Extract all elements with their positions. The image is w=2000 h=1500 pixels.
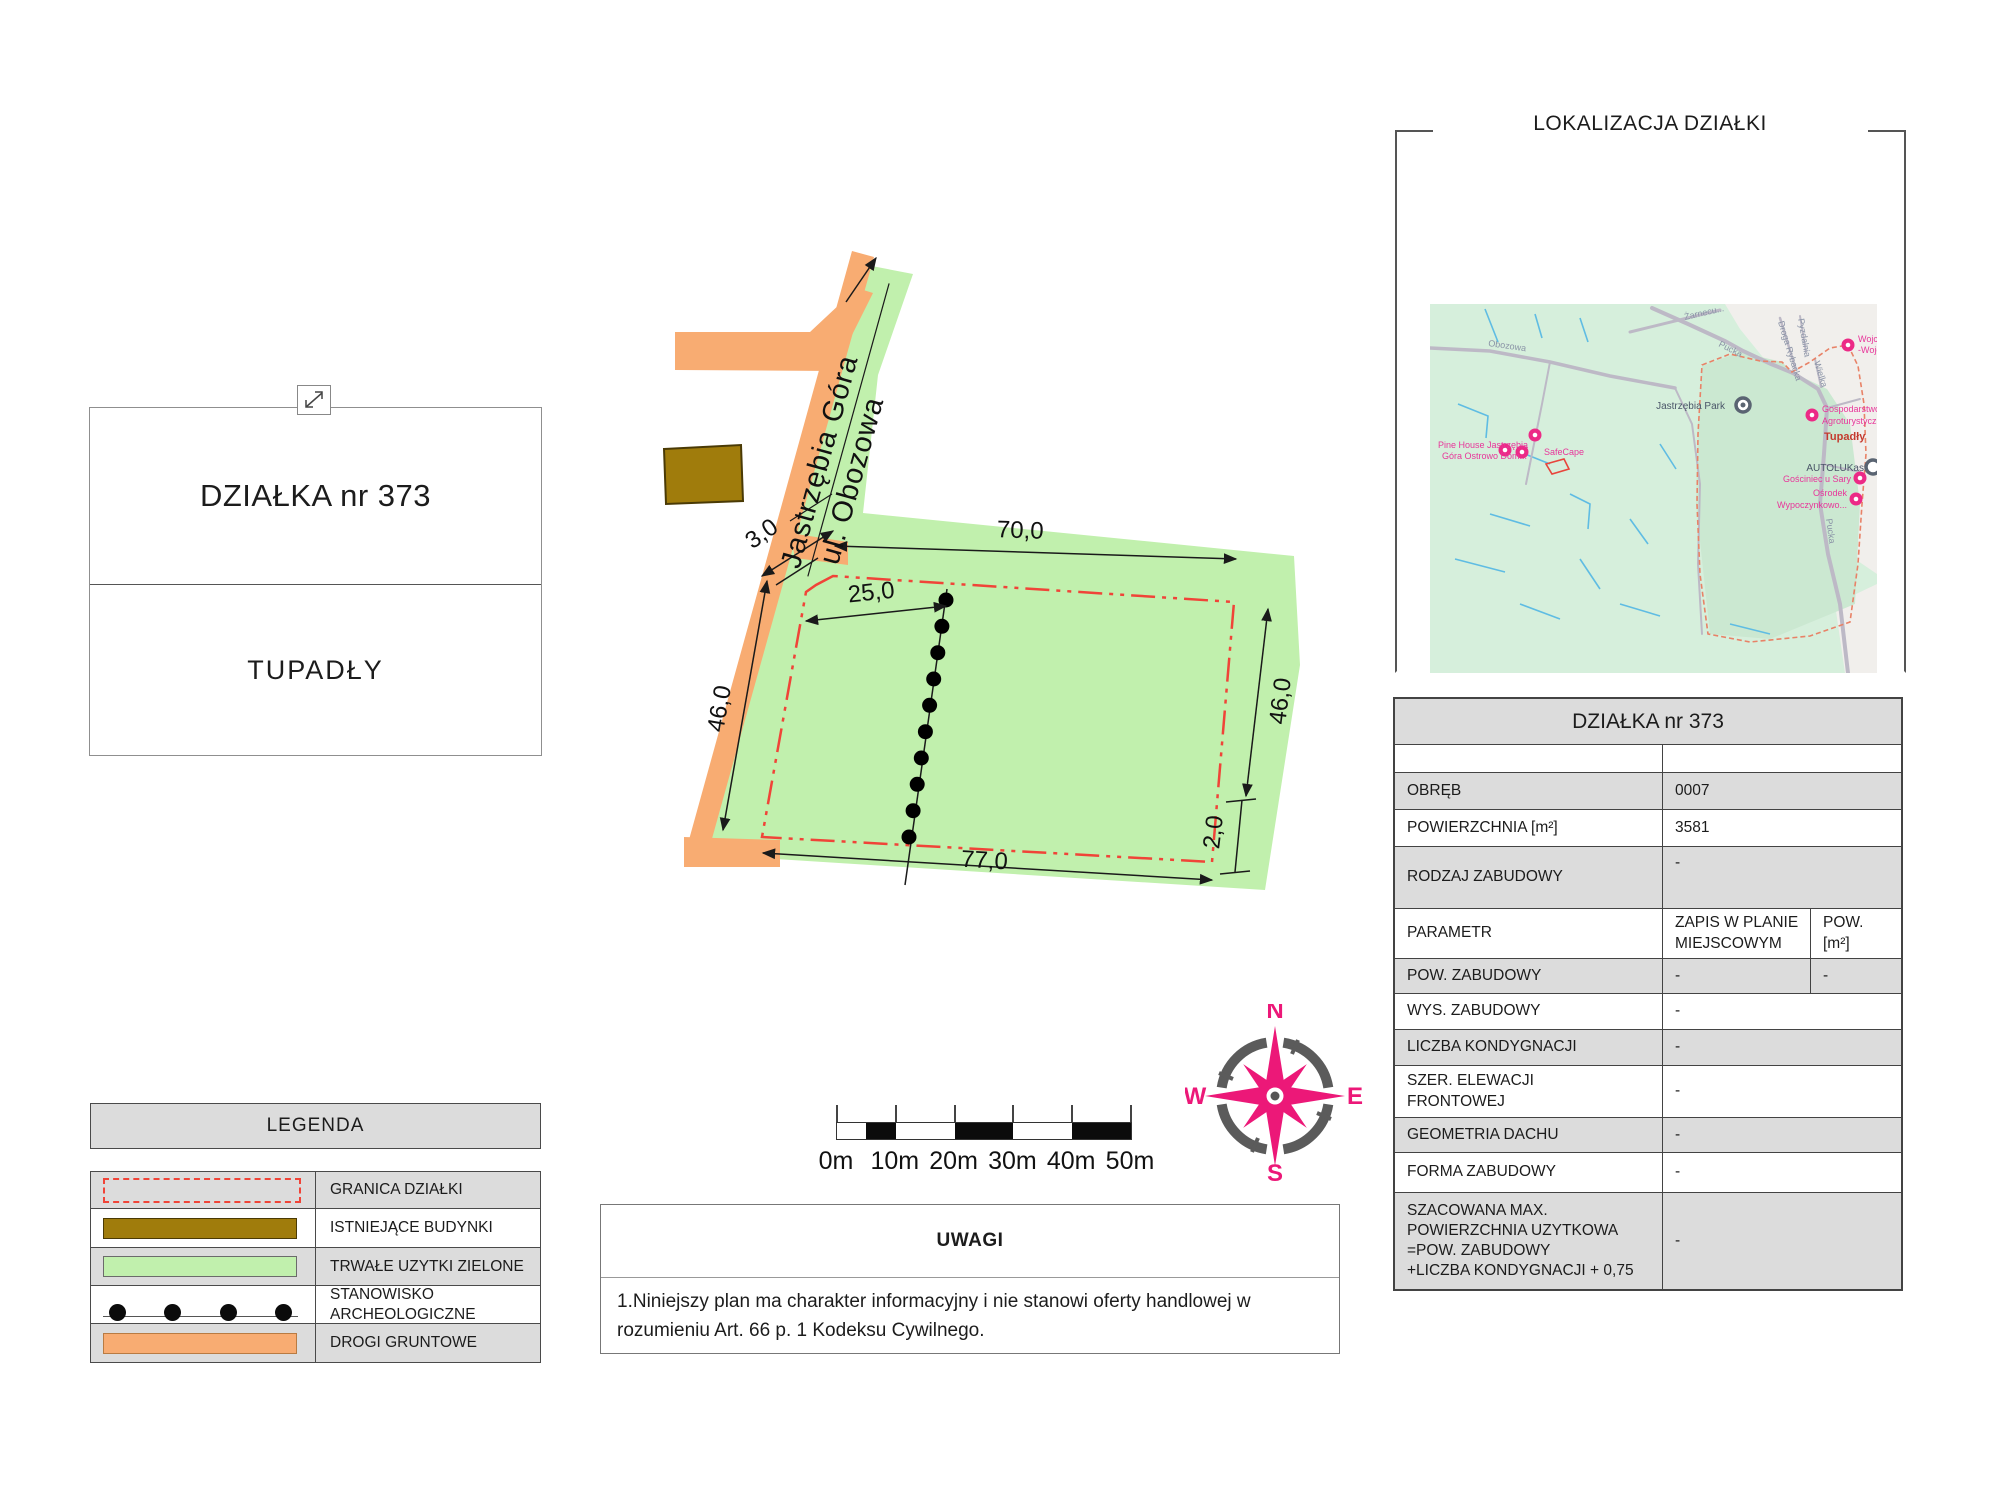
parcel-plan-sheet: DZIAŁKA nr 373 TUPADŁY LEGENDA GRANICA D… (0, 0, 2000, 1500)
parcel-title: DZIAŁKA nr 373 (200, 478, 431, 514)
table-row: POWIERZCHNIA [m²] 3581 (1395, 809, 1901, 846)
compass-s: S (1267, 1160, 1283, 1184)
locality-section: TUPADŁY (90, 585, 541, 755)
map-label-park: Jastrzębia Park (1656, 401, 1726, 412)
green-swatch (91, 1248, 316, 1285)
dim-top-label: 70,0 (996, 516, 1044, 545)
legend-row-roads: DROGI GRUNTOWE (91, 1323, 540, 1362)
road-swatch (91, 1324, 316, 1362)
table-row: OBRĘB 0007 (1395, 772, 1901, 809)
legend-row-archaeo: STANOWISKO ARCHEOLOGICZNE (91, 1285, 540, 1323)
legend-label: TRWAŁE UZYTKI ZIELONE (316, 1248, 540, 1285)
scale-label: 20m (929, 1147, 978, 1176)
compass-w: W (1185, 1083, 1207, 1110)
building-swatch (91, 1209, 316, 1247)
table-row: WYS. ZABUDOWY - (1395, 993, 1901, 1029)
map-label-safecape: SafeCape (1544, 447, 1584, 457)
compass-rose: N E S W (1185, 1004, 1365, 1184)
scale-label: 50m (1106, 1147, 1155, 1176)
location-map: Obozowa Żarnecu... Pucka Pucka Droga Ryb… (1430, 304, 1877, 673)
map-label-gosp2: Agroturystyczne W... (1822, 416, 1877, 426)
dim-inner-label: 25,0 (847, 577, 896, 609)
legend-row-green: TRWAŁE UZYTKI ZIELONE (91, 1247, 540, 1285)
site-plan: 70,0 25,0 46,0 46,0 2,0 77,0 3,0 Jastrzę… (620, 240, 1340, 1000)
scale-label: 0m (819, 1147, 854, 1176)
parcel-details-table: DZIAŁKA nr 373 OBRĘB 0007 POWIERZCHNIA [… (1393, 697, 1903, 1291)
table-row: FORMA ZABUDOWY - (1395, 1152, 1901, 1192)
table-row: GEOMETRIA DACHU - (1395, 1117, 1901, 1152)
map-label-pine1: Pine House Jastrzębia (1438, 440, 1528, 450)
dim-right-label: 46,0 (1264, 676, 1296, 726)
table-row: SZACOWANA MAX. POWIERZCHNIA UZYTKOWA =PO… (1395, 1192, 1901, 1289)
map-label-wojcie2: -Wojcie... (1858, 345, 1877, 355)
table-row: SZER. ELEWACJI FRONTOWEJ - (1395, 1065, 1901, 1117)
locality-name: TUPADŁY (247, 655, 384, 686)
legend-title: LEGENDA (267, 1115, 365, 1137)
archaeo-swatch (91, 1286, 316, 1323)
legend-label: GRANICA DZIAŁKI (316, 1172, 540, 1208)
legend-row-boundary: GRANICA DZIAŁKI (91, 1172, 540, 1208)
table-row: LICZBA KONDYGNACJI - (1395, 1029, 1901, 1065)
expand-icon[interactable] (297, 385, 331, 415)
scale-bar: 0m 10m 20m 30m 40m 50m (836, 1105, 1132, 1185)
existing-building (664, 445, 743, 504)
legend-label: ISTNIEJĄCE BUDYNKI (316, 1209, 540, 1247)
location-title: LOKALIZACJA DZIAŁKI (1470, 112, 1830, 136)
parcel-info-box: DZIAŁKA nr 373 TUPADŁY (89, 407, 542, 756)
dim-bottom-label: 77,0 (960, 846, 1008, 876)
compass-n: N (1266, 1004, 1283, 1024)
scale-bar-strip (836, 1122, 1132, 1140)
table-row (1395, 744, 1901, 772)
dim-right-small-label: 2,0 (1198, 814, 1229, 850)
compass-e: E (1347, 1083, 1363, 1110)
notes-header: UWAGI (601, 1205, 1339, 1278)
legend-row-buildings: ISTNIEJĄCE BUDYNKI (91, 1208, 540, 1247)
boundary-swatch (91, 1172, 316, 1208)
scale-label: 10m (870, 1147, 919, 1176)
parcel-title-section: DZIAŁKA nr 373 (90, 408, 541, 585)
map-label-gosp1: Gospodarstwo (1822, 404, 1877, 414)
notes-body: 1.Niniejszy plan ma charakter informacyj… (601, 1278, 1339, 1355)
map-label-autolukas: AUTOLUKas (1806, 463, 1864, 474)
notes-box: UWAGI 1.Niniejszy plan ma charakter info… (600, 1204, 1340, 1354)
map-label-gosciniec: Gościniec u Sary (1783, 474, 1852, 484)
scale-label: 40m (1047, 1147, 1096, 1176)
legend-table: GRANICA DZIAŁKI ISTNIEJĄCE BUDYNKI TRWAŁ… (90, 1171, 541, 1363)
scale-label: 30m (988, 1147, 1037, 1176)
map-label-osrodek1: Ośrodek (1813, 488, 1848, 498)
table-row: RODZAJ ZABUDOWY - (1395, 846, 1901, 908)
legend-label: DROGI GRUNTOWE (316, 1324, 540, 1362)
table-header: DZIAŁKA nr 373 (1395, 699, 1901, 744)
table-row: POW. ZABUDOWY - - (1395, 958, 1901, 993)
map-label-wojcie1: Wojcie... (1858, 334, 1877, 344)
table-row: PARAMETR ZAPIS W PLANIE MIEJSCOWYM POW. … (1395, 908, 1901, 958)
map-label-pine2: Góra Ostrowo Dom... (1442, 451, 1527, 461)
legend-header: LEGENDA (90, 1103, 541, 1149)
map-label-tupadly: Tupadły (1824, 431, 1866, 443)
legend-label: STANOWISKO ARCHEOLOGICZNE (316, 1286, 540, 1323)
map-label-osrodek2: Wypoczynkowo... (1777, 500, 1847, 510)
